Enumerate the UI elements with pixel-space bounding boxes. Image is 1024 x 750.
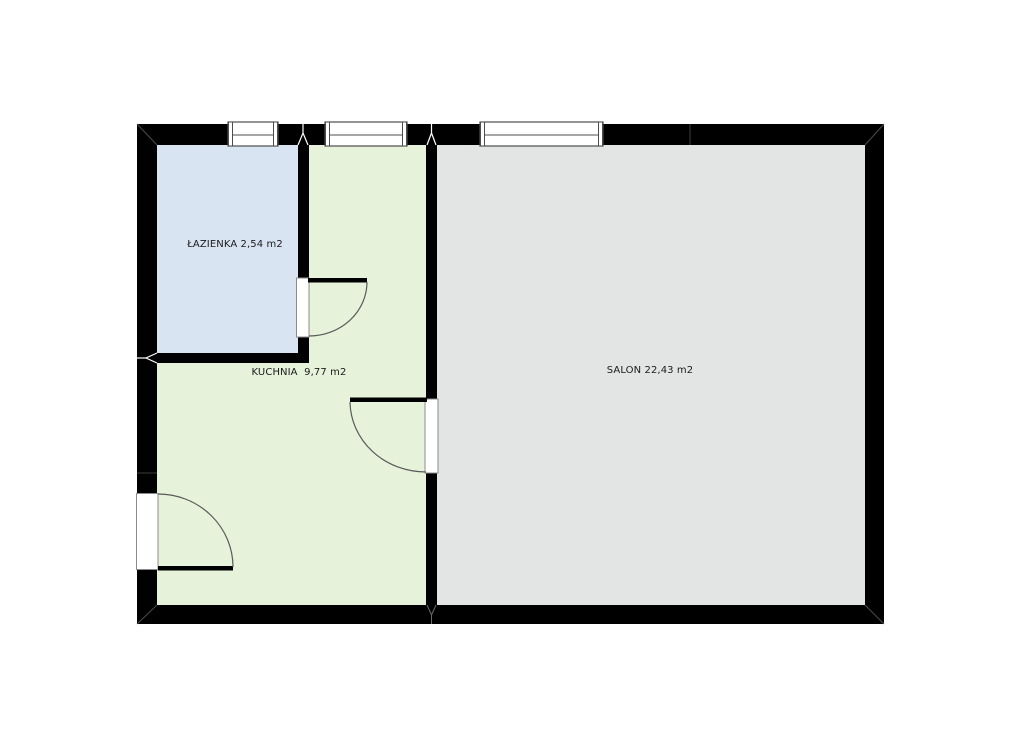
floorplan-page: ŁAZIENKA 2,54 m2 KUCHNIA 9,77 m2 SALON 2… — [0, 0, 1024, 750]
door-opening — [137, 494, 159, 570]
room-label-living-room: SALON 22,43 m2 — [607, 365, 693, 376]
window-frame-post — [599, 122, 603, 146]
floorplan-drawing: ŁAZIENKA 2,54 m2 KUCHNIA 9,77 m2 SALON 2… — [0, 0, 1024, 750]
door-opening — [425, 399, 438, 473]
door-leaf — [350, 398, 427, 403]
window-frame-post — [229, 122, 233, 146]
room-label-bathroom: ŁAZIENKA 2,54 m2 — [186, 239, 283, 250]
window-frame-post — [326, 122, 330, 146]
room-label-kitchen: KUCHNIA 9,77 m2 — [252, 367, 347, 378]
door-opening — [297, 278, 310, 337]
window-living-room — [480, 122, 603, 146]
window-frame-post — [403, 122, 407, 146]
window-kitchen — [325, 122, 407, 146]
door-leaf — [158, 566, 233, 571]
window-frame-post — [274, 122, 278, 146]
window-frame-post — [481, 122, 485, 146]
door-leaf — [308, 278, 367, 283]
window-bathroom — [228, 122, 278, 146]
